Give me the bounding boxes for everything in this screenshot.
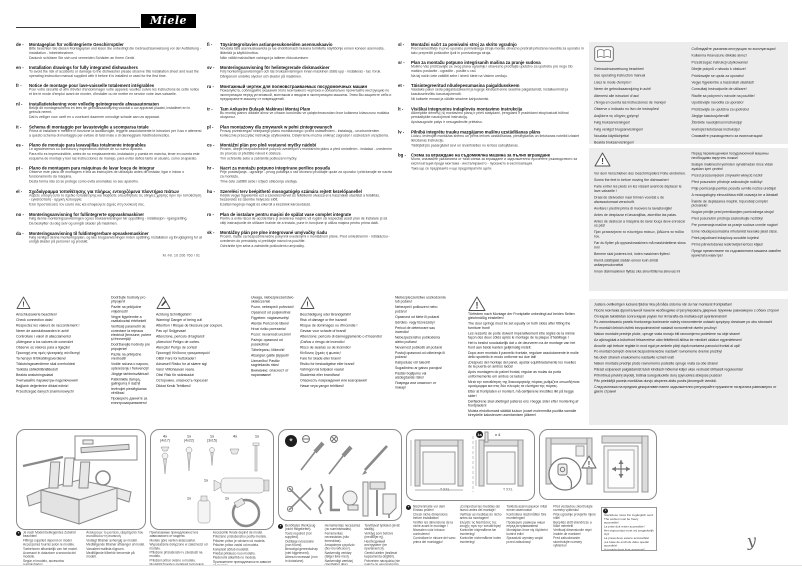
- text-line: Ievērojiet lietošanas instrukciju!: [692, 126, 785, 133]
- text-line: Het is beslist noodzakelijk dat u de deu…: [468, 342, 580, 350]
- carton-parts-drawing: [17, 430, 143, 527]
- language-column-2: fi -Täysintegroitavien astianpesukoneide…: [207, 42, 393, 294]
- text-line: Tools required (not supplied).: [285, 532, 321, 539]
- language-entry: fr -Notice de montage pour lave-vaissell…: [16, 83, 202, 97]
- text-line: Gebrauchsanweisung beachten!: [594, 66, 687, 73]
- language-column-3: sl -Montažni načrt za pomivalni stroj za…: [398, 42, 584, 294]
- text-line: Justera ovillkorligen luckans fjädrar li…: [594, 303, 783, 307]
- notice-manual-left: Gebrauchsanweisung beachten!See operatin…: [594, 46, 687, 146]
- page-bottom-rule: [0, 565, 802, 566]
- text-line: Priloženi pribor ovisno o modelu.: [150, 559, 209, 563]
- text-line: Учитывайте параметры подключения!: [16, 379, 106, 384]
- text-line: Pazite na priključne vrijednosti!: [111, 306, 152, 314]
- socket-alignment-drawing: !: [540, 430, 654, 497]
- language-entry-body: Vaadake palun seda paigaldusskeemi ja lu…: [411, 88, 584, 102]
- panel-unpacking-drawing: [16, 429, 146, 530]
- text-line: Accessoires fournis selon le modèle.: [23, 543, 82, 547]
- text-line: Herramientas necesarias (no suministrada…: [325, 524, 361, 531]
- warning-triangle-icon: !: [16, 296, 106, 311]
- text-line: Nakon montaže prednje ploče, opruge vrat…: [594, 332, 783, 336]
- text-line: Attenersi alle istruzioni d'uso!: [594, 93, 687, 100]
- language-entry: pl -Plan montażowy dla zmywarek w pełni …: [207, 124, 393, 138]
- open-book-icon: [594, 46, 687, 64]
- text-line: Niebezpieczeństwo uszkodzenia lub pożaru…: [395, 296, 446, 304]
- text-line: Po zamontowaniu panelu frontowego koniec…: [594, 321, 783, 325]
- text-line: Benötigtes Werkzeug (nicht mitgeliefert)…: [285, 524, 321, 531]
- printer-mark: y: [746, 531, 757, 551]
- text-line: Beschädigung oder Brandgefahr!: [300, 313, 390, 318]
- text-line: Neem de aansluitwaarden in acht!: [16, 329, 106, 334]
- text-line: ¡Después del montaje del panel, ajustar …: [468, 361, 580, 369]
- text-line: Følg bruksanvisningen!: [594, 120, 687, 127]
- text-line: Postoji opasnost od oštećenja ili požara…: [395, 351, 446, 359]
- text-line: Sugadinimo ar gaisro pavojus!: [395, 367, 446, 371]
- language-entry-body: Lūdzu, ievērojiet montāžas shēmu un pirm…: [411, 135, 584, 149]
- text-line: Steckdose muss frei zugänglich sein!: [604, 514, 654, 518]
- text-line: Verificaţi dimensiunile nişei înainte de…: [553, 529, 596, 536]
- text-line: Μετά την τοποθέτηση της διακοσμητικής πό…: [468, 380, 580, 388]
- text-line: Anschlusswerte beachten!: [16, 313, 106, 318]
- text-line: Przed przesunięciem zmywarki wkręcić nóż…: [692, 174, 785, 178]
- text-line: Sérülés- vagy tűzveszély!: [395, 321, 446, 325]
- language-entry-body: Følg denne monteringsanvisningen og les …: [29, 217, 202, 226]
- notice-panel-manual: Gebrauchsanweisung beachten!See operatin…: [589, 42, 788, 144]
- text-line: Kontrollera nischmåtten före monteringen…: [507, 513, 550, 520]
- text-line: ¡Aténgase a los valores de conexión!: [16, 340, 106, 345]
- footnote-marker-icon: *: [16, 531, 21, 536]
- text-line: ¡Daños o riesgo de incendio!: [300, 340, 390, 345]
- text-line: Atenţie Pericol de tăiere!: [251, 322, 294, 326]
- warning-triangle-icon: !: [594, 152, 687, 170]
- text-line: Sprawdzić wymiary wnęki przed zabudową!: [507, 537, 550, 544]
- text-line: Tarkista sähköliitäntätiedot!: [16, 368, 106, 373]
- text-line: Nogice privijte pred premikanjem pomival…: [692, 211, 785, 215]
- text-line: Figyelem: vágásveszély!: [251, 317, 294, 321]
- header-rule: [16, 27, 140, 28]
- text-line: Ön kapak takıldıktan sonra kapak yayları…: [594, 315, 783, 319]
- text-line: Modele göre verilen aksesuarlar.: [150, 539, 209, 543]
- language-entry-body: Pentru a evita riscul de accidentare şi …: [220, 217, 393, 226]
- text-line: Прилагаемые принадлежности в зависимости…: [150, 531, 209, 538]
- text-line: Przestrzegać danych znamionowych!: [16, 390, 106, 395]
- cut-hazard-triangle-icon: [156, 296, 246, 311]
- text-line: Fare for skade eller brann!: [300, 357, 390, 362]
- language-entry-body: Bitte beachten Sie diesen Montageplan un…: [29, 47, 202, 61]
- text-line: Wyposażenie dołączone w zależności od mo…: [150, 543, 209, 550]
- text-line: Controllare le misure del vano prima del…: [413, 537, 456, 544]
- text-line: Ανάλογα με το μοντέλο, εξαρτήματα που συ…: [86, 531, 145, 538]
- text-line: Atsargiai: galite įsipjauti!: [251, 354, 294, 358]
- language-entry: ru -Монтажный чертеж для полновстраиваем…: [207, 84, 393, 102]
- text-line: See operating instruction manual: [594, 73, 687, 80]
- text-line: Pazite na priključne vrednosti!: [111, 353, 152, 361]
- language-entry: de -Montageplan für vollintegrierte Gesc…: [16, 42, 202, 61]
- text-line: Kierrä säätöjalat sisään ennen kuin siir…: [594, 259, 687, 268]
- language-entry-body: Proszę przestrzegać niniejszego planu mo…: [220, 129, 393, 138]
- text-line: Atenção! Perigo de cortes!: [156, 346, 246, 351]
- language-entry-body: Observe este plano de montagem e leia as…: [29, 171, 202, 185]
- footnote-marker-icon: *: [603, 509, 608, 514]
- miele-logo: Miele: [141, 14, 196, 28]
- text-line: Nevarnost poškodb ali požara!: [395, 346, 446, 350]
- text-line: Riaďte sa pokynmi v návode na použitie!: [692, 93, 785, 100]
- text-line: La presa deve essere accessibile!: [604, 537, 654, 541]
- text-line: Pridržavajte se uputstva za upotrebu!: [692, 106, 785, 113]
- language-entry: it -Schema di montaggio per lavastovigli…: [16, 124, 202, 138]
- text-line: The socket must be freely accessible!: [604, 518, 654, 525]
- svg-text:!: !: [588, 460, 591, 469]
- text-line: Vor dem Verschieben des Geschirrspülers …: [594, 172, 687, 176]
- svg-text:!: !: [306, 300, 309, 309]
- text-line: Priedai priklauso nuo modelio.: [213, 552, 272, 556]
- text-line: Muista ehdottomasti säätää luukun jouset…: [468, 410, 580, 418]
- text-line: Przestrzegać instrukcji użytkowania!: [692, 59, 785, 66]
- panel-socket-and-alignment-drawing: !: [539, 429, 657, 500]
- text-line: Montajdan önce niş ölçülerini kontrol ed…: [507, 529, 550, 536]
- text-line: ¡La base de enchufe debe quedar accesibl…: [604, 541, 654, 548]
- text-line: Avvitare i piedini prima di muovere la l…: [594, 207, 687, 211]
- text-line: Antes de deslocar a máquina de lavar lou…: [594, 220, 687, 229]
- language-entry-body: Pred namestitvijo in prvo uporabo pomiva…: [411, 47, 584, 56]
- text-line: Türfedern nach Montage der Frontplatte u…: [468, 313, 580, 321]
- text-line: Screw the feet in before moving the dish…: [594, 178, 687, 182]
- text-line: Järgige kasutusjuhendit!: [692, 113, 785, 120]
- text-line: Nischenmaße vor dem Einbau prüfen!: [413, 505, 456, 512]
- text-line: Obs! Risk för skärskada!: [156, 373, 246, 378]
- panel-tools-drawing: *: [278, 429, 402, 521]
- text-line: Piederumi atkarībā no modeļa.: [213, 556, 272, 560]
- svg-text:*: *: [289, 437, 293, 447]
- text-line: Проверьте размеры ниши перед встраивание…: [507, 521, 550, 528]
- text-line: Διαβάστε τις οδηγίες χρήσης!: [594, 113, 687, 120]
- text-line: Outillage nécessaire (non fourni).: [285, 540, 321, 547]
- text-line: Προσοχή στις τιμές ηλεκτρικής σύνδεσης!: [16, 351, 106, 356]
- text-line: Nødvendig verktøy (følger ikke med).: [325, 551, 361, 558]
- text-line: Pažnja: opasnost od posekotina!: [251, 339, 294, 347]
- text-line: Vedlagt tilbehør avhengig av modell.: [86, 539, 145, 543]
- text-line: Dopo aver montato il pannello frontale, …: [468, 351, 580, 359]
- text-line: Het stopcontact moet vrij toegankelijk z…: [604, 530, 654, 537]
- language-entry: fi -Täysintegroitavien astianpesukoneide…: [207, 42, 393, 61]
- text-line: Hrozí riziko porezania!: [251, 328, 294, 332]
- text-line: Nebezpečí poškození nebo požáru!: [395, 306, 446, 314]
- language-entry: no -Monteringsanvisning for fullintegrer…: [16, 212, 202, 226]
- language-entry: sv -Monteringsanvisning för helintegrera…: [207, 65, 393, 79]
- text-line: Komplekt sõltub mudelist.: [213, 548, 272, 552]
- text-line: Medföljande tillbehör beroende på modell…: [86, 552, 145, 559]
- footnote-tools: * Benötigtes Werkzeug (nicht mitgeliefer…: [278, 524, 400, 566]
- text-line: Järgige tarbimisväärtusi!: [111, 372, 152, 376]
- text-line: ¡Comprobar las medidas del hueco antes d…: [460, 505, 503, 512]
- language-entry: lv -Pilnībā integrētu trauku mazgājamo m…: [398, 130, 584, 149]
- warning-connection-data: ! Anschlusswerte beachten!Check connecti…: [16, 296, 152, 424]
- warning-damage-fire: ! Beschädigung oder Brandgefahr!Risk of …: [300, 296, 446, 424]
- language-entry-body: Kérjük vegye figyelembe ezt a szerelési …: [220, 194, 393, 208]
- text-line: Antes de desplazar el lavavajillas, ator…: [594, 213, 687, 217]
- text-line: Pred zabudovaním skontrolujte rozmery vý…: [553, 537, 596, 548]
- text-line: Pridržavajte se uputa za uporabu!: [692, 73, 785, 80]
- text-line: Før du flytter på oppvaskmaskinen må mas…: [594, 242, 687, 251]
- language-entry: hr -Nacrt za montažu potpuno integrirane…: [207, 166, 393, 185]
- text-line: ¡Tenga en cuenta las instrucciones de ma…: [594, 100, 687, 107]
- warning-door-springs: ! Türfedern nach Montage der Frontplatte…: [468, 296, 580, 424]
- text-line: Prije ugradnje provjerite mjere niše!: [553, 513, 596, 520]
- text-line: Tarvittavat työkalut (eivät sisälly).: [364, 524, 400, 531]
- notice-feet-left: ! Vor dem Verschieben des Geschirrspüler…: [594, 152, 687, 276]
- text-line: Prieš pajudinant indaplovę susukite koje…: [692, 237, 785, 241]
- text-line: Kullanma Kılavuzunu dikkate alınız!: [692, 53, 785, 60]
- language-entry-body: Bu montaj planını dikkate alınız ve ciha…: [220, 111, 393, 120]
- text-line: Před vestavbou zkontrolujte rozměry výkl…: [553, 505, 596, 512]
- tools-drawing: *: [279, 430, 399, 518]
- text-line: Повреда или опасност от пожар!: [395, 382, 446, 390]
- text-line: Преди преместване на съдомиялната машина…: [692, 250, 785, 259]
- text-line: Priložené príslušenstvo podľa modelu.: [213, 535, 272, 539]
- text-line: Nebezpečenstvo poškodenia alebo požiaru!: [395, 336, 446, 344]
- miele-logo-text: Miele: [150, 14, 187, 27]
- language-entry: lt -Visiškai integruotos indaplovės mont…: [398, 106, 584, 125]
- text-line: Vegye figyelembe a használati utasítást!: [692, 80, 785, 87]
- text-line: Faire entrer les pieds en les vissant av…: [594, 185, 687, 194]
- text-line: Na obeh straneh enakomerno nastavite vzm…: [594, 356, 783, 360]
- text-line: Pärast esipaneeli paigaldamist tuleb kin…: [594, 368, 783, 372]
- language-entry-body: Bekijk dit montageschema en lees de gebr…: [29, 106, 202, 120]
- text-line: Prije pomicanja perilice posuđa uvrnite …: [692, 187, 785, 191]
- text-line: Consultaţi Instrucţiunile de utilizare!: [692, 86, 785, 93]
- text-line: Po montáži čelných dvierok bezpodmienečn…: [594, 350, 783, 354]
- text-line: Attrezzi necessari (non in dotazione).: [285, 556, 321, 563]
- text-line: Проверете данните за електрозахранването…: [111, 397, 152, 405]
- text-line: Noudata käyttöohjetta!: [594, 133, 687, 140]
- text-line: La prise doit rester accessible !: [604, 526, 654, 530]
- text-line: Varusteet mallista riippuen.: [86, 547, 145, 551]
- footnote-niche: * Nischenmaße vor dem Einbau prüfen!Chec…: [406, 505, 596, 551]
- text-line: Pēc priekšējā paneļa montāžas durvju ats…: [594, 380, 783, 384]
- notice-manual-right: Соблюдайте указания инструкции по эксплу…: [692, 46, 785, 146]
- text-line: Pastāv bojājumu vai aizdegšanās risks!: [395, 372, 446, 380]
- text-line: Benodigd gereedschap (niet bijgeleverd).: [285, 548, 321, 555]
- language-entry-body: Følg venligst denne monteringsplan, og l…: [29, 236, 202, 245]
- text-line: Upoštevajte navodila za uporabo!: [692, 100, 785, 107]
- text-line: Προσοχή! Κίνδυνος τραυματισμού!: [156, 351, 246, 356]
- model-caption: T XXL: [503, 488, 513, 492]
- text-line: Risk of damage or fire hazard!: [300, 318, 390, 323]
- language-entry-body: Пожалуйста, соблюдайте указания этого мо…: [220, 89, 393, 102]
- language-entry: cs -Montážní plán pro plně vestavné myčk…: [207, 143, 393, 162]
- language-entry-list: de -Montageplan für vollintegrierte Gesc…: [16, 42, 202, 244]
- text-line: Arcurile uşii trebuie reglate în mod ega…: [594, 344, 783, 348]
- text-line: Medfølgende tilbehør afhænger af model.: [86, 543, 145, 547]
- language-entry: et -Täisintegreeritud nõudepesumasina pa…: [398, 83, 584, 102]
- text-line: Skaderisk eller brandfara!: [300, 373, 390, 378]
- svg-text:!: !: [22, 300, 25, 309]
- language-entry-body: Prije postavljanja - ugradnje - prvog pu…: [220, 171, 393, 185]
- text-line: Les ressorts de porte doivent impérative…: [468, 332, 580, 340]
- text-line: Uzmanību! Pastāv sagriešanās risks!: [251, 359, 294, 367]
- text-line: Ta hensyn til tilkoblingsverdiene!: [16, 357, 106, 362]
- warning-triangle-icon: !: [468, 296, 580, 311]
- screw-multiplier: x 4: [495, 433, 500, 438]
- text-line: Pritvirtinus priekinį skydelį, būtinai s…: [594, 374, 783, 378]
- text-line: Внимание: опасност от нараняване!: [251, 369, 294, 377]
- text-line: Priložen pribor je odvisen od modela.: [213, 539, 272, 543]
- language-entry-body: Följ monteringsanvisningen och läs bruks…: [220, 70, 393, 79]
- text-line: Neem de gebruiksaanwijzing in acht!: [594, 86, 687, 93]
- text-line: Tähelepanu, lõikeoht!: [251, 348, 294, 352]
- model-caption: T XXL: [440, 488, 450, 492]
- text-line: Tilslutningsværdierne skal overholdes!: [16, 362, 106, 367]
- text-line: Dikkat Kesik Tehlikesi!: [156, 384, 246, 389]
- text-line: Lisez le mode d'emploi !: [594, 79, 687, 86]
- text-line: Dodržujte hodnoty pro připojení!: [111, 296, 152, 304]
- text-line: Accessori in dotazione a seconda del mod…: [23, 552, 82, 559]
- warning-cut-hazard: Achtung Schnittgefahr!Warning! Danger of…: [156, 296, 294, 424]
- text-line: Осторожно, опасность порезов!: [156, 379, 246, 384]
- text-line: Fittings supplied depend on model.: [23, 539, 82, 543]
- text-line: Hasar veya yangın tehlikesi!: [300, 384, 390, 389]
- language-entry: es -Plano de montaje para lavavajillas t…: [16, 143, 202, 162]
- text-line: Před posunutím přístroje zašroubujte nož…: [692, 180, 785, 184]
- language-entry: sl -Montažni načrt za pomivalni stroj za…: [398, 42, 584, 56]
- text-line: Κίνδυνος ζημιάς ή φωτιάς!: [300, 351, 390, 356]
- text-line: Перед перемещением посудомоечной машины …: [692, 152, 785, 161]
- text-line: Po montáži čelních dvířek bezpodmínečně …: [594, 327, 783, 331]
- text-line: Beakta bruksanvisningen!: [594, 140, 687, 147]
- text-line: Απαραίτητα εργαλεία (δεν συνοδεύουν).: [325, 544, 361, 551]
- text-line: Dørfjedrene skal ubetinget justeres ens …: [468, 400, 580, 408]
- text-line: Nismaten vóór inbouw controleren!: [413, 529, 456, 536]
- text-line: Bağlantı değerlerine dikkat ediniz!: [16, 384, 106, 389]
- text-line: Az ajtórugókat a bútorfront felszerelése…: [594, 338, 783, 342]
- text-line: Opasnost od posjekotina!: [251, 311, 294, 315]
- language-entry: el -Σχεδιάγραμμα τοποθέτησης για πλήρως …: [16, 189, 202, 208]
- footnote-marker-icon: *: [406, 505, 411, 510]
- text-line: Etter at frontplaten er montert, må dørf…: [468, 390, 580, 398]
- svg-text:!: !: [476, 301, 479, 311]
- notice-panel-feet: ! Vor dem Verschieben des Geschirrspüler…: [589, 148, 788, 291]
- text-line: Πριν μετακινήσετε το πλυντήριο πιάτων, β…: [594, 231, 687, 240]
- language-entry: pt -Plano de montagem para máquinas de l…: [16, 166, 202, 185]
- text-line: Kahjustuse või tuleoht!: [395, 361, 446, 365]
- text-line: Vahingon tai tulipalon vaara!: [300, 368, 390, 373]
- text-line: Uwaga, niebezpieczeństwo skaleczenia!: [251, 296, 294, 304]
- text-line: Advarsel! Risiko for at skære sig!: [156, 362, 246, 367]
- text-line: Pozor: nevarnost ureznin!: [251, 333, 294, 337]
- text-line: Ievērojiet pieslēgšanas vērtības!: [111, 388, 152, 396]
- text-line: A mosogatógép elmozdítása előtt csavarja…: [692, 193, 785, 197]
- step-badge: 1a: [476, 431, 483, 438]
- text-line: The door springs must be set equally on …: [468, 322, 580, 330]
- text-line: Спазвайте ръководството за експлоатация!: [692, 133, 785, 140]
- language-entry-body: Le agradecemos su confianza y esperamos …: [29, 148, 202, 162]
- language-entry-list: fi -Täysintegroitavien astianpesukoneide…: [207, 42, 393, 249]
- text-line: Pericol de deteriorare sau incendiu!: [395, 326, 446, 334]
- text-line: Achtung Schnittgefahr!: [156, 313, 246, 318]
- language-entry-body: To avoid the risk of accidents or damage…: [29, 70, 202, 79]
- text-line: Controllare i valori di allacciamento!: [16, 335, 106, 340]
- language-entry-body: Prosím, riaďte sa bezpodmienečne pokynmi…: [220, 235, 393, 249]
- text-line: Check connection data!: [16, 318, 106, 323]
- text-line: Pre pomeranja mašine za pranje sudova uv…: [692, 224, 785, 228]
- language-entry: sr -Plan za montažu potpuno integrisanih…: [398, 60, 584, 79]
- language-entry: sk -Montážny plán pre plne integrované u…: [207, 230, 393, 249]
- text-line: Patikrinkite įtampą, galingumą ir dažnį!: [111, 378, 152, 386]
- language-entry: hu -Szerelési terv beépíthető mosogatógé…: [207, 189, 393, 208]
- text-line: Beépítés előtt ellenőrizze a fülke méret…: [553, 521, 596, 528]
- panel-niche-dimensions-drawing: 1a x 4 T XXL T XXL: [406, 429, 535, 501]
- text-line: Tarkista asennusaukon mitat ennen asennu…: [507, 505, 550, 512]
- text-line: Přiložené příslušenství v závislosti na …: [150, 551, 209, 558]
- language-entry: nl -Installatietekening voor volledig ge…: [16, 101, 202, 120]
- text-line: Kontroller nichemålene inden montering!: [460, 537, 503, 544]
- text-line: Žiūrėkite naudojimosi instrukciją!: [692, 120, 785, 127]
- text-line: Respectez les valeurs de raccordement !: [16, 324, 106, 329]
- text-line: Enne nõudepesumasina nihutamist keerake …: [692, 230, 785, 234]
- text-line: Înainte de deplasarea maşinii, înşurubaţ…: [692, 200, 785, 209]
- text-line: Draai de stelvoeten naar binnen voordat …: [594, 196, 687, 205]
- text-line: Observe o indicado no livro de instruçõe…: [594, 106, 687, 113]
- text-line: Dbejte pokynů v návodu k obsluze!: [692, 66, 785, 73]
- footnote-marker-icon: *: [278, 524, 283, 529]
- document-number: M.-Nr. 10 206 760 / 01: [16, 253, 200, 258]
- text-line: След монтажа на предния декоративен пане…: [594, 386, 783, 395]
- language-entry: bg -Схема за вграждане на съдомиялна маш…: [398, 153, 584, 172]
- language-entry-body: Prima di installare e mettere in funzion…: [29, 129, 202, 138]
- text-line: Risque de dommages ou d'incendie !: [300, 324, 390, 329]
- language-entry-body: Моля, спазвайте указанията от тази схема…: [411, 158, 584, 172]
- text-line: Følg venligst brugsanvisningen!: [594, 126, 687, 133]
- language-entry-body: Pour votre sécurité et afin d'éviter d'e…: [29, 88, 202, 97]
- text-line: Ferramentas necessárias (não fornecidas)…: [325, 532, 361, 543]
- language-entry-body: Atkreipkite dėmesį į šį montavimo planą …: [411, 111, 584, 125]
- text-line: Verificaţi parametrii de conectare la re…: [111, 325, 152, 342]
- text-line: Bulaşık makinesini yerinden oynatmadan ö…: [692, 163, 785, 172]
- text-line: Gevaar voor schade of brand!: [300, 329, 390, 334]
- text-line: Beakta anslutningsdata!: [16, 373, 106, 378]
- text-line: Priložen pribor zavisi od modela.: [213, 544, 272, 548]
- text-line: Pred posunutím prístroja zaskrutkujte no…: [692, 217, 785, 221]
- text-line: Vérifier les dimensions de la niche avan…: [413, 521, 456, 528]
- language-entry: ro -Plan de instalare pentru maşini de s…: [207, 212, 393, 226]
- language-entry: da -Monteringsanvisning til fuldintegrer…: [16, 231, 202, 245]
- text-line: Ελέγξτε τις διαστάσεις της εσοχής πριν τ…: [460, 521, 503, 528]
- text-line: Check niche dimensions before installati…: [413, 513, 456, 520]
- warning-door-springs-continued: Justera ovillkorligen luckans fjädrar li…: [589, 299, 788, 425]
- notice-feet-right: Перед перемещением посудомоечной машины …: [692, 152, 785, 276]
- text-line: Gerekli aletler (teslimat kapsamında değ…: [364, 551, 400, 558]
- text-line: Опасность повреждения или возгорания!: [300, 379, 390, 384]
- text-line: Nakon montaže prednje ploče ravnomerno p…: [594, 362, 783, 366]
- language-entry-body: Noudata tätä asennuskaaviota ja lue ehdo…: [220, 47, 393, 61]
- text-line: Risco de avarias ou de incêndio!: [300, 346, 390, 351]
- text-line: Kontroller nisjemålene før montering!: [460, 529, 503, 536]
- text-line: После монтажа фронтальной панели необход…: [594, 309, 783, 313]
- text-line: A tomada deve ficar acessível!: [604, 549, 654, 552]
- footnote-accessories: * Je nach Modell beiliegendes Zubehör be…: [16, 531, 272, 565]
- text-line: Verificar as medidas do nicho antes da m…: [460, 513, 503, 520]
- text-line: Vodite računa o naponu, opterećenju i fr…: [111, 363, 152, 371]
- text-line: Attenzione, pericolo di tagliarsi!: [156, 335, 246, 340]
- language-entry-list: sl -Montažni načrt za pomivalni stroj za…: [398, 42, 584, 171]
- text-line: Opasnost od štete ili požara!: [395, 315, 446, 319]
- text-line: Toebehoren afhankelijk van het model.: [23, 547, 82, 551]
- text-line: Risiko for beskadigelse eller brand!: [300, 362, 390, 367]
- text-line: Após montagem do painel frontal, regular…: [468, 371, 580, 379]
- text-line: Pirms pārvietošanas ieskrūvējiet ierīces…: [692, 243, 785, 247]
- svg-text:!: !: [601, 156, 604, 166]
- language-entry-body: Molimo Vas pridržavajte se ovog plana ug…: [411, 65, 584, 79]
- text-line: Je nach Modell beiliegendes Zubehör beac…: [23, 531, 82, 538]
